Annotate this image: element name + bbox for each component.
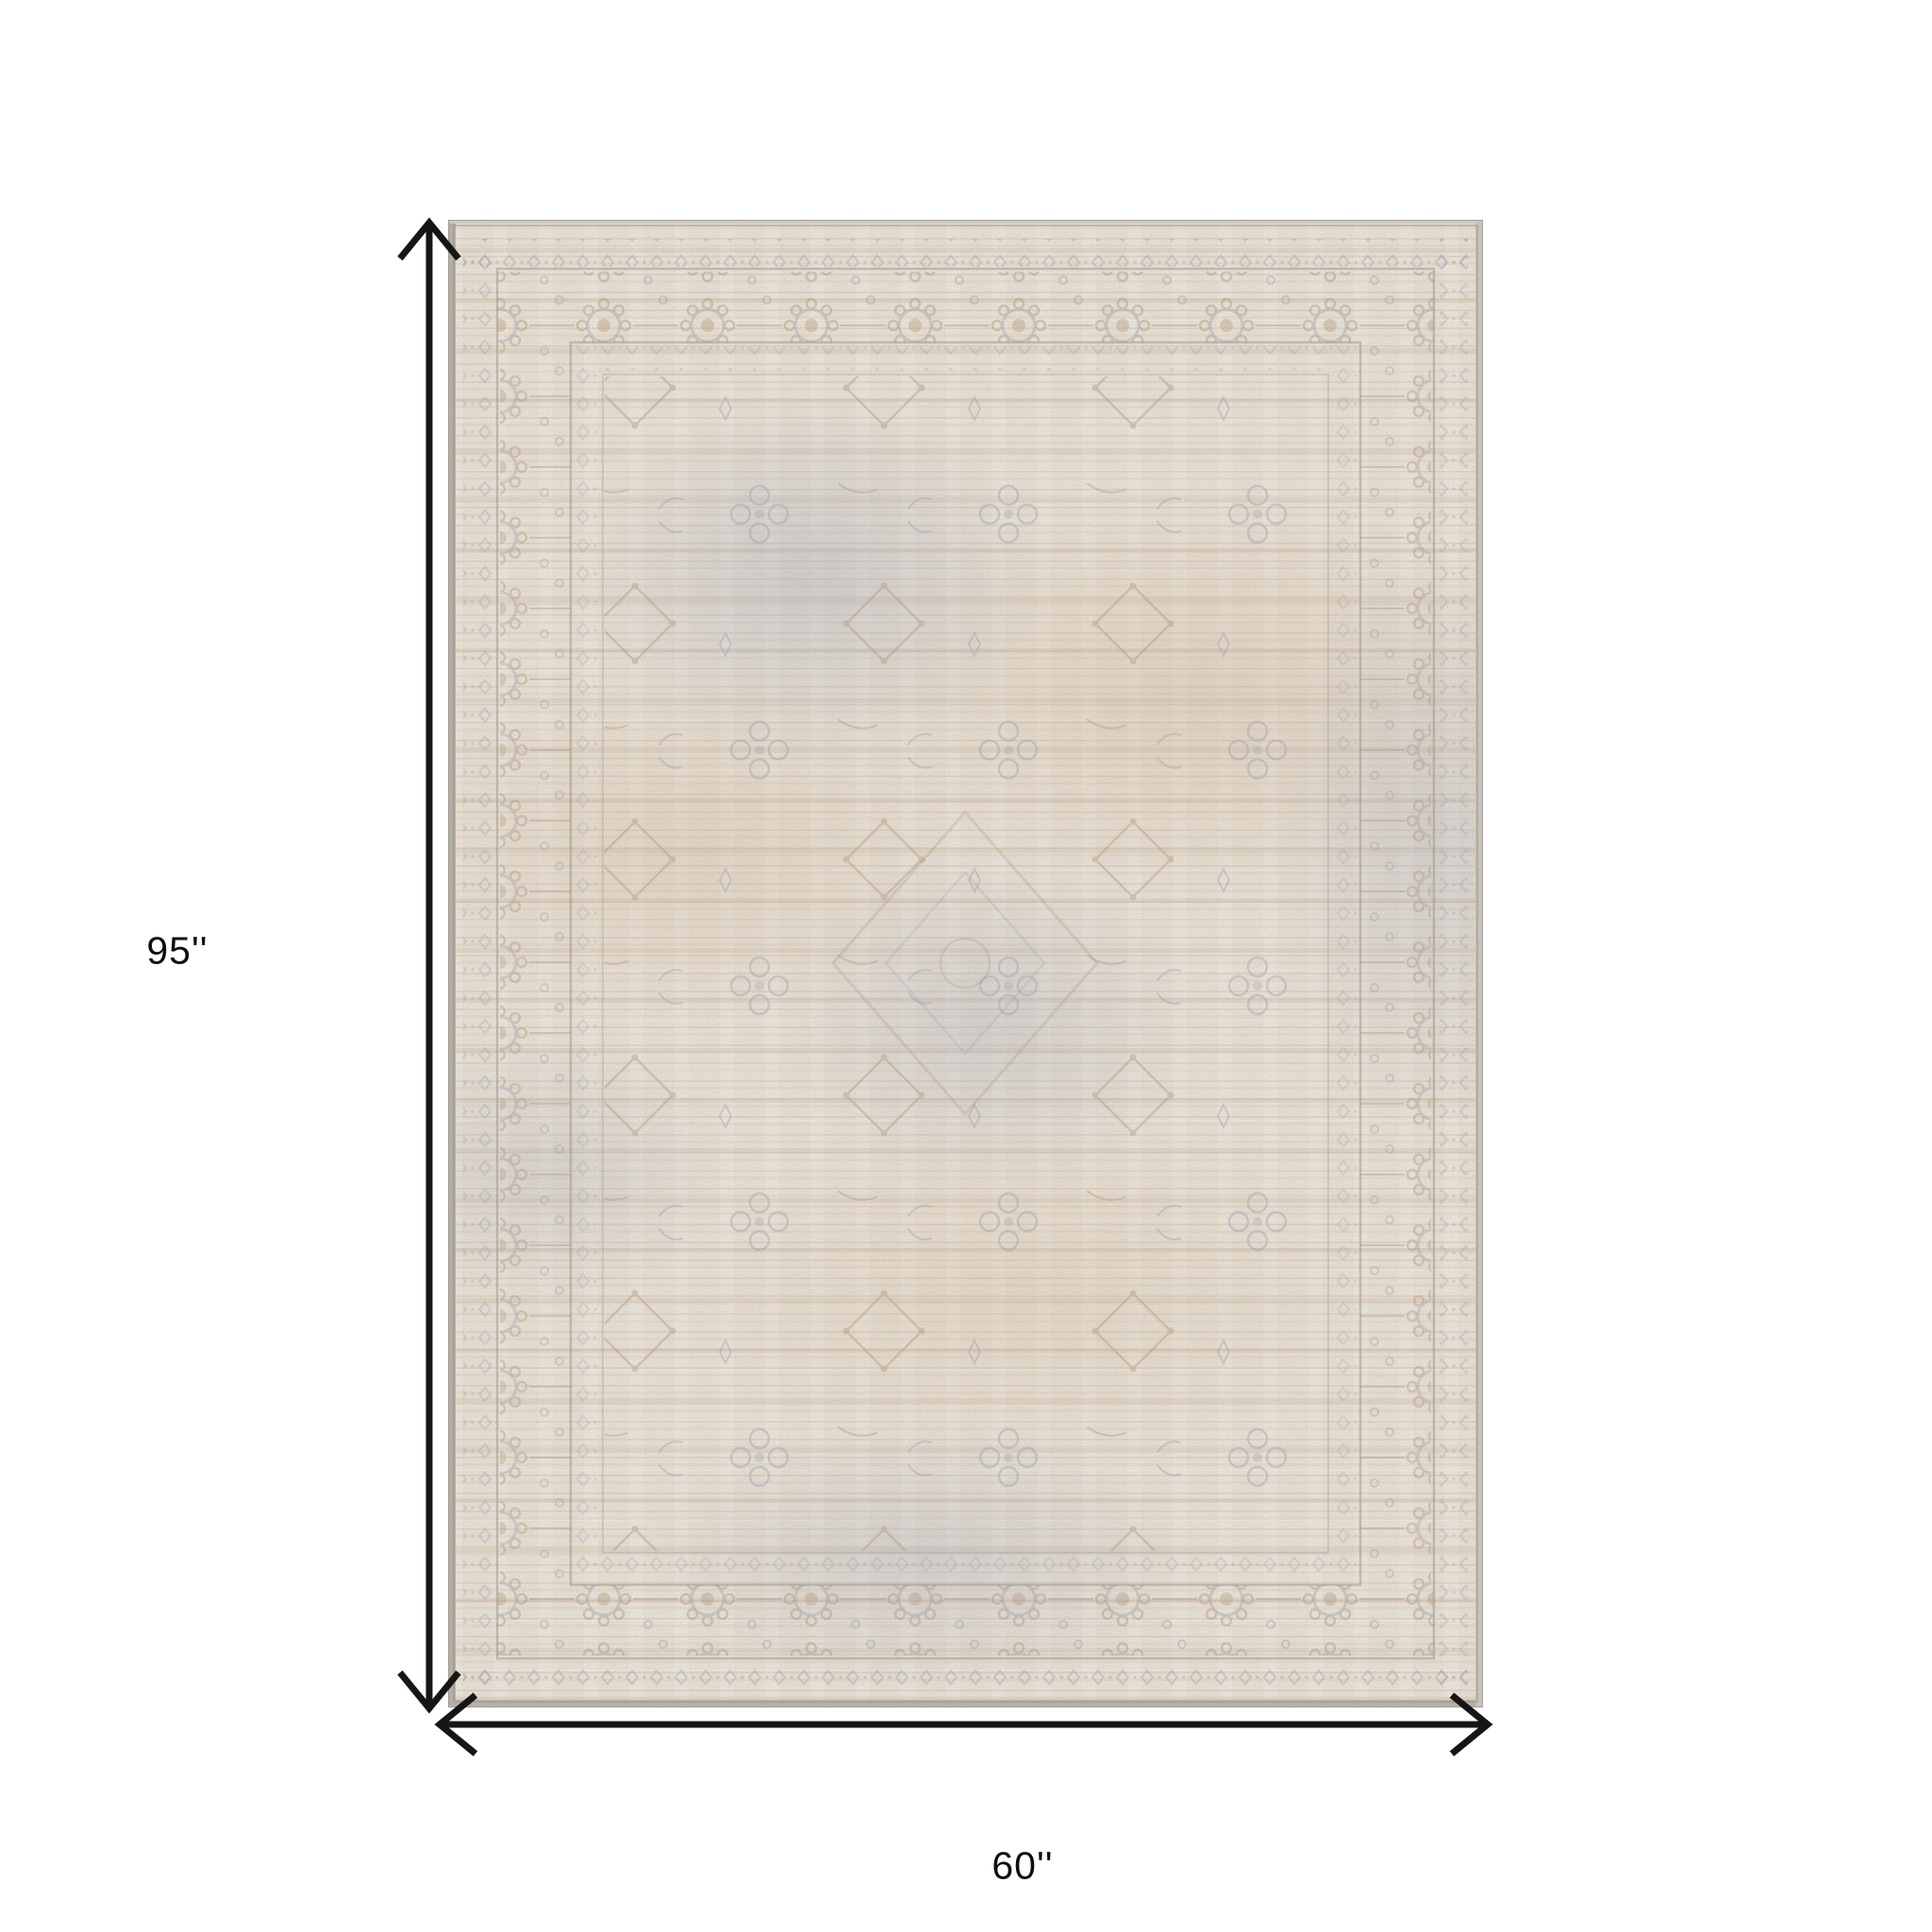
height-dimension-label: 95'' (146, 929, 208, 974)
product-dimension-diagram: 95'' 60'' (0, 0, 1932, 1932)
rug-photo (448, 220, 1483, 1707)
width-dimension-label: 60'' (991, 1844, 1053, 1889)
rug-texture (448, 220, 1483, 1707)
